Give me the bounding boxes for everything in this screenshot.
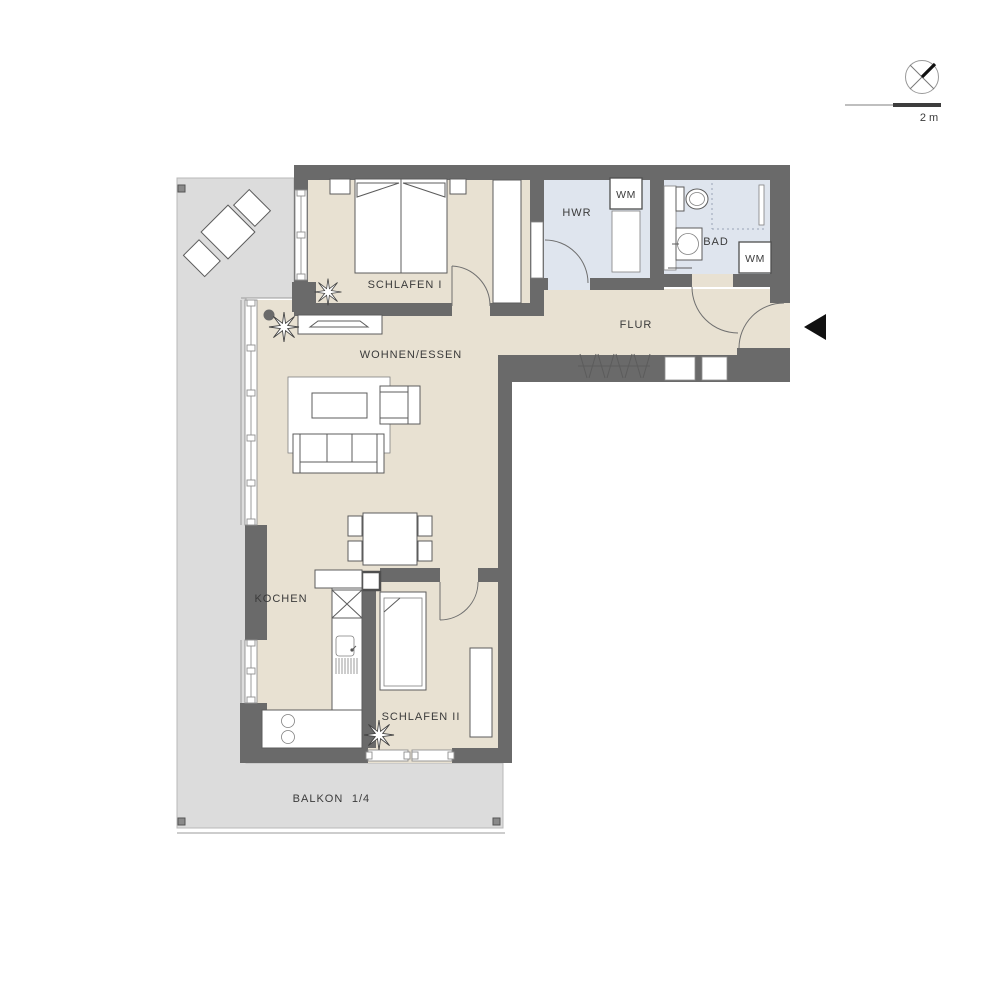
- label-flur: FLUR: [620, 319, 653, 331]
- schlafen1-window: [295, 190, 307, 280]
- plant-pot: [264, 310, 275, 321]
- wardrobe-schlafen2: [470, 648, 492, 737]
- balcony-door: [366, 750, 454, 761]
- sofa: [293, 434, 384, 473]
- stove-burners: [262, 710, 362, 748]
- plant-icon: [315, 279, 342, 306]
- entrance-threshold: [770, 303, 790, 348]
- label-wm-bad: WM: [745, 253, 765, 265]
- plant-icon: [364, 720, 394, 750]
- label-balkon-share: 1/4: [352, 793, 370, 805]
- label-hwr: HWR: [562, 207, 591, 219]
- dining-chair: [418, 516, 432, 536]
- wall-niche: [702, 357, 727, 380]
- label-kochen: KOCHEN: [254, 593, 307, 605]
- scale-label: 2 m: [920, 112, 938, 124]
- label-wm-hwr: WM: [616, 189, 636, 201]
- wardrobe-schlafen1: [493, 180, 521, 303]
- label-balkon: BALKON: [293, 793, 344, 805]
- single-bed: [380, 592, 426, 690]
- floor-plan-page: SCHLAFEN I HWR BAD FLUR WOHNEN/ESSEN KOC…: [0, 0, 1000, 1000]
- nightstand: [330, 179, 350, 194]
- label-bad: BAD: [703, 236, 729, 248]
- kitchen-glazing: [245, 640, 257, 703]
- double-bed: [355, 179, 447, 273]
- dining-chair: [418, 541, 432, 561]
- armchair: [380, 386, 420, 424]
- bathroom-sink: [672, 228, 702, 260]
- dining-table: [363, 513, 417, 565]
- floor-plan-canvas: SCHLAFEN I HWR BAD FLUR WOHNEN/ESSEN KOC…: [0, 0, 1000, 1000]
- kitchen-sink: [336, 636, 356, 656]
- coffee-table: [312, 393, 367, 418]
- dining-chair: [348, 516, 362, 536]
- label-schlafen2: SCHLAFEN II: [382, 711, 461, 723]
- nightstand: [450, 179, 466, 194]
- dining-chair: [348, 541, 362, 561]
- shaft-column: [362, 572, 380, 590]
- shower-glass: [759, 185, 764, 225]
- entrance-arrow-icon: [804, 314, 826, 340]
- plant-icon: [269, 312, 299, 342]
- label-schlafen1: SCHLAFEN I: [368, 279, 443, 291]
- schlafen1-door-gap: [452, 303, 490, 316]
- hwr-door-gap: [548, 278, 590, 290]
- scale-bar: 2 m: [845, 105, 941, 124]
- label-wohnen-essen: WOHNEN/ESSEN: [360, 349, 462, 361]
- bath-cabinet: [664, 186, 676, 270]
- wall-niche: [665, 357, 695, 380]
- cooktop-x: [332, 590, 362, 618]
- north-indicator-icon: [906, 61, 939, 94]
- hwr-door-leaf: [531, 222, 543, 278]
- living-glazing: [245, 300, 257, 525]
- bad-door-gap: [692, 274, 733, 287]
- sideboard-tv: [298, 315, 382, 334]
